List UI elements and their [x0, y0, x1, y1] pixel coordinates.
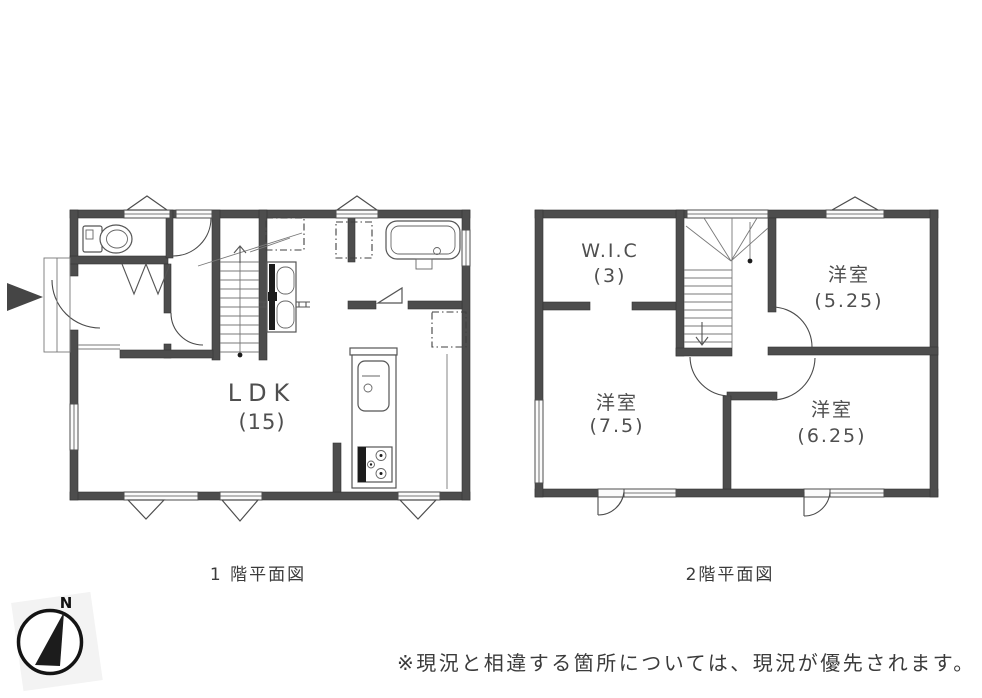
room-size-ldk: (15)	[238, 410, 285, 434]
entrance-closet-doors	[122, 264, 170, 294]
bath-folding-door	[378, 288, 402, 303]
floor1-plan: LDK (15)	[44, 196, 470, 521]
floor2-stairs	[684, 218, 768, 348]
floorplan-image: LDK (15)	[0, 0, 982, 698]
room-label-ldk: LDK	[228, 379, 297, 407]
floor2-caption: 2階平面図	[686, 565, 775, 585]
entrance-hall-door-arc	[171, 313, 203, 345]
stairs-up-arrow-icon	[234, 246, 246, 263]
room-size-bedroom-625: (6.25)	[797, 425, 866, 447]
toilet-icon	[83, 225, 132, 253]
floor1-caption: 1 階平面図	[210, 565, 306, 585]
room-size-bedroom-525: (5.25)	[814, 290, 883, 312]
stove-icon	[358, 447, 392, 482]
washbasin-icon	[267, 262, 296, 332]
room-size-wic: (3)	[594, 265, 627, 287]
compass-north-label: N	[60, 594, 73, 612]
bedroom-75-door-arc	[690, 357, 730, 396]
bedroom-625-door-arc	[772, 358, 815, 400]
floor2-window-markers	[832, 197, 878, 210]
floor2-plan: W.I.C (3) 洋室 (5.25) 洋室 (7.5) 洋室 (6.25)	[535, 197, 938, 516]
room-size-bedroom-75: (7.5)	[589, 415, 644, 437]
kitchen-sink-icon	[358, 361, 389, 411]
entrance-porch	[44, 258, 120, 352]
room-label-wic: W.I.C	[581, 240, 639, 262]
floorplan-canvas: LDK (15)	[0, 0, 982, 698]
kitchen-counter	[350, 348, 447, 489]
footnote: ※現況と相違する箇所については、現況が優先されます。	[397, 651, 976, 675]
bathtub-icon	[386, 221, 460, 269]
fridge-space	[432, 312, 466, 347]
compass-icon: N	[11, 592, 103, 691]
entrance-door-arc	[52, 280, 100, 328]
entrance-arrow-icon	[7, 283, 43, 311]
room-label-bedroom-525: 洋室	[828, 264, 870, 286]
room-label-bedroom-625: 洋室	[811, 399, 853, 421]
hall-door-arc	[173, 218, 211, 256]
room-label-bedroom-75: 洋室	[596, 392, 638, 414]
bedroom-525-door-arc	[772, 307, 812, 347]
